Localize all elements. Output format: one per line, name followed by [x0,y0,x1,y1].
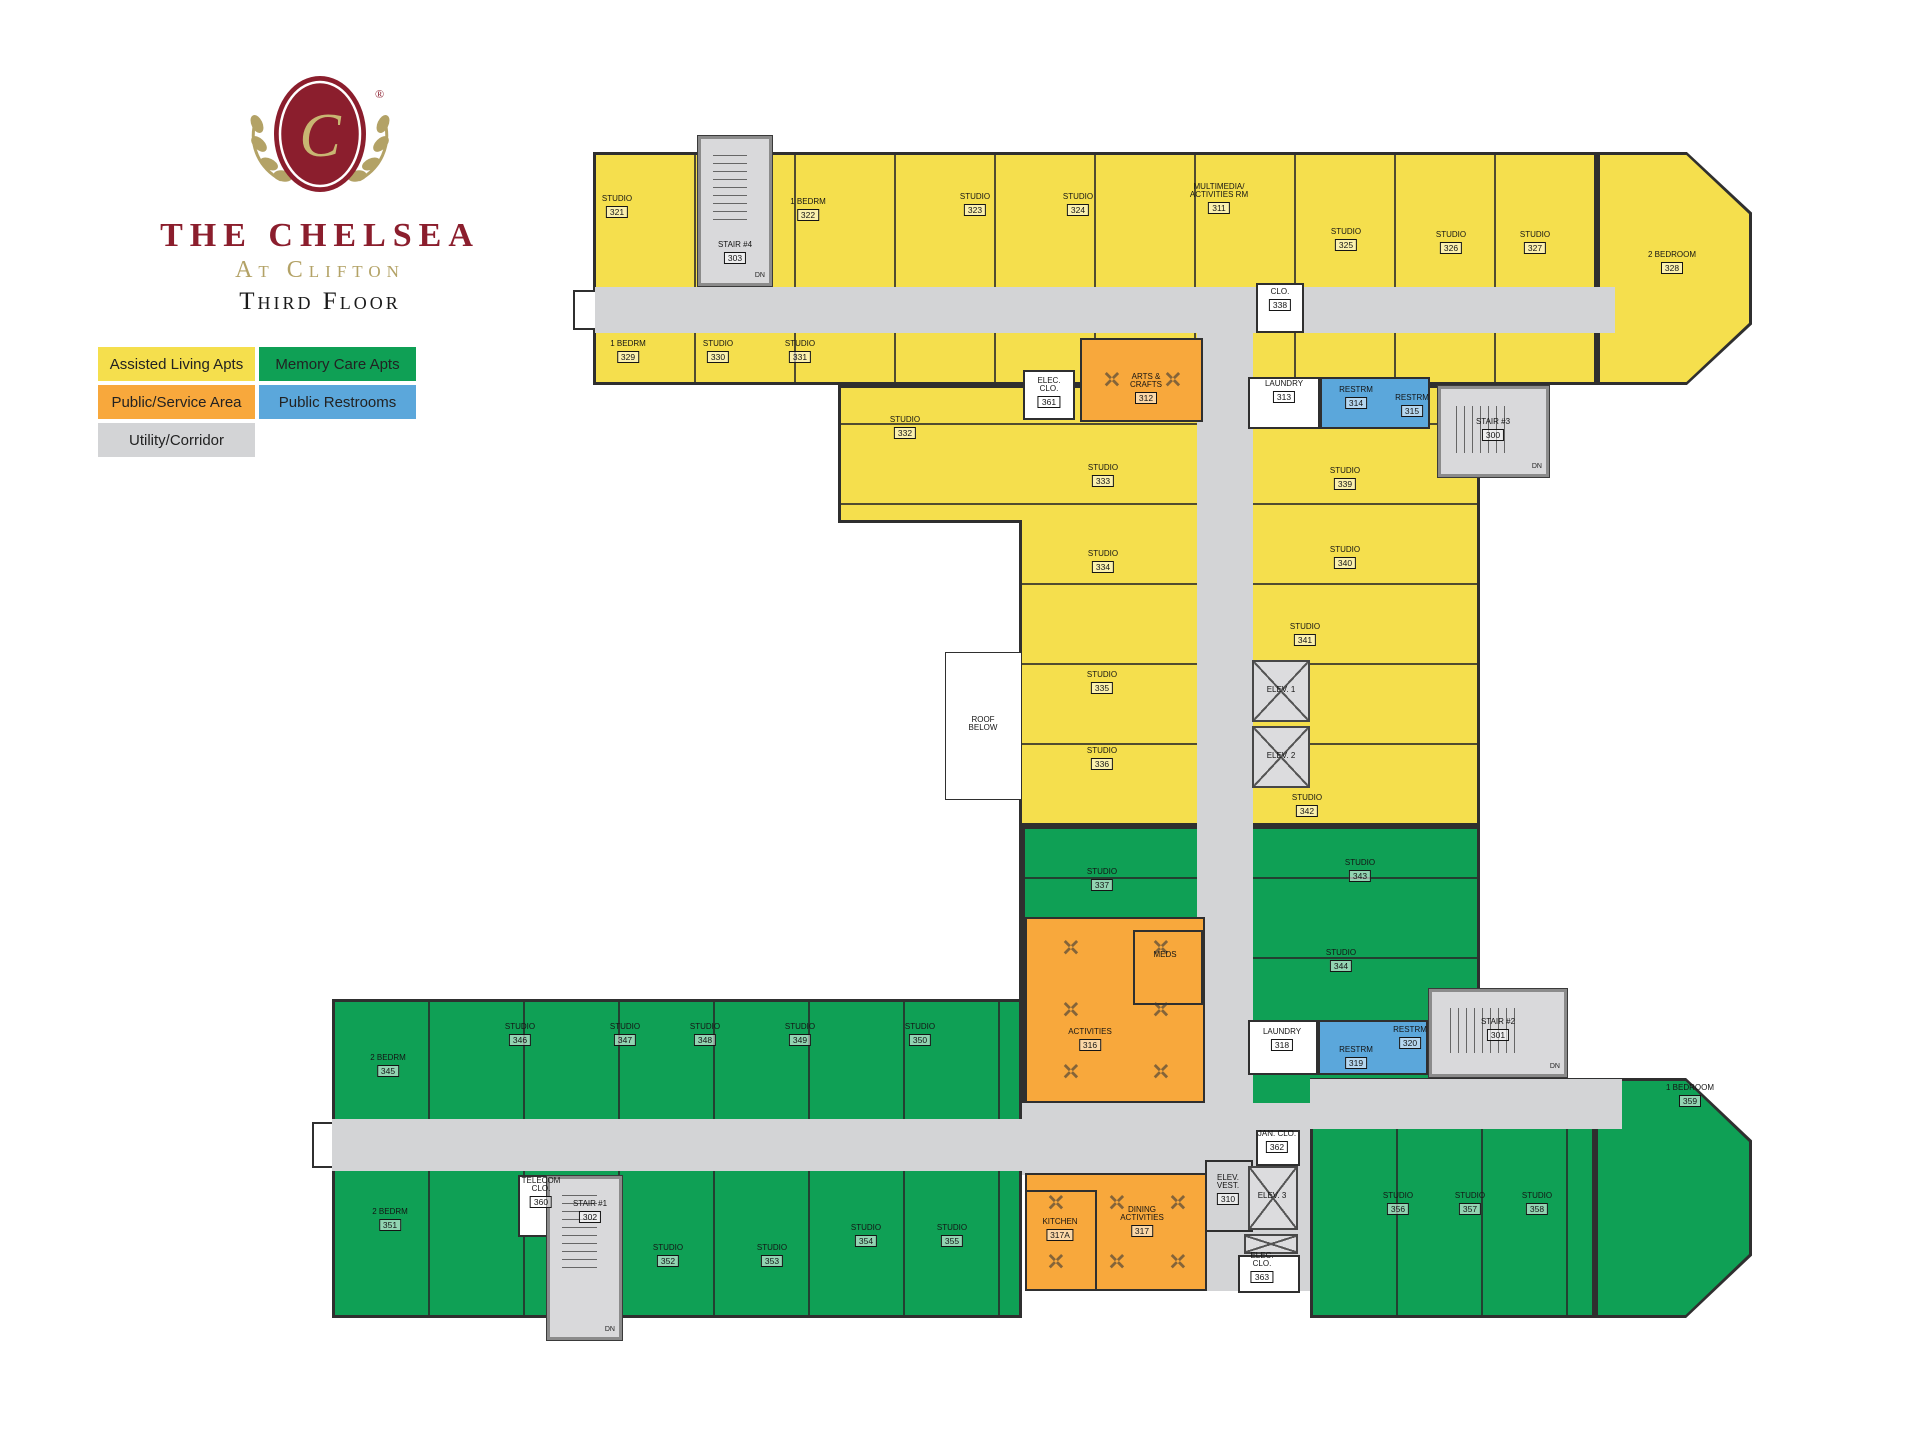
chelsea-logo-emblem: C ® [215,72,425,204]
stair-3-tower-treads [1449,406,1507,453]
legend-label: Utility/Corridor [129,432,224,449]
legend-item-assisted-living-apts: Assisted Living Apts [98,347,255,381]
top-corridor [595,287,1615,333]
floor-title: Third Floor [110,288,530,316]
logo-monogram: C [299,102,341,170]
stair-4-tower-treads [713,148,747,227]
elevator-2 [1252,726,1310,788]
mid-corridor [1197,333,1253,1171]
laundry-313-room [1248,377,1320,429]
restrooms-314-315 [1320,377,1430,429]
jan-clo-362-room [1256,1130,1300,1166]
elevator-1 [1252,660,1310,722]
legend-item-public-service-area: Public/Service Area [98,385,255,419]
facility-location: At Clifton [110,257,530,284]
legend-label: Public Restrooms [279,394,397,411]
bottom-right-corridor [1310,1079,1622,1129]
stair-dn-label: DN [1550,1063,1560,1070]
legend-label: Memory Care Apts [275,356,399,373]
top-corridor-entry [573,290,595,330]
restrooms-319-320 [1318,1020,1428,1075]
stair-3-tower: DN [1437,385,1550,478]
legend-item-public-restrooms: Public Restrooms [259,385,416,419]
roof-below-box [945,652,1022,800]
stair-2-tower: DN [1428,988,1568,1078]
laundry-318-room [1248,1020,1318,1075]
clo-338-room [1256,283,1304,333]
legend-item-memory-care-apts: Memory Care Apts [259,347,416,381]
meds-room [1133,930,1203,1005]
bottom-corridor-entry [312,1122,332,1168]
legend-label: Assisted Living Apts [110,356,243,373]
elevator-3 [1248,1166,1298,1230]
stair-4-tower: DN [697,135,773,287]
kitchen-room [1025,1190,1097,1291]
legend-label: Public/Service Area [111,394,241,411]
elec-clo-363-room [1238,1255,1300,1293]
stair-1-tower: DN [546,1175,623,1341]
arts-crafts-room [1080,338,1203,422]
stair-2-tower-treads [1443,1008,1516,1053]
stair-1-tower-treads [562,1188,597,1275]
elec-clo-361-room [1023,370,1075,420]
brand-block: C ® The Chelsea At Clifton Third Floor [110,72,530,316]
legend-item-utility-corridor: Utility/Corridor [98,423,255,457]
facility-name: The Chelsea [110,217,530,255]
stair-dn-label: DN [605,1326,615,1333]
elevator-shaft [1244,1234,1298,1254]
stair-dn-label: DN [755,272,765,279]
elev-vest-310-room [1205,1160,1253,1232]
registered-mark: ® [375,87,384,101]
bottom-corridor [332,1119,1022,1171]
legend: Assisted Living AptsMemory Care AptsPubl… [98,347,416,457]
stair-dn-label: DN [1532,463,1542,470]
top-wing-bay [1597,152,1752,385]
